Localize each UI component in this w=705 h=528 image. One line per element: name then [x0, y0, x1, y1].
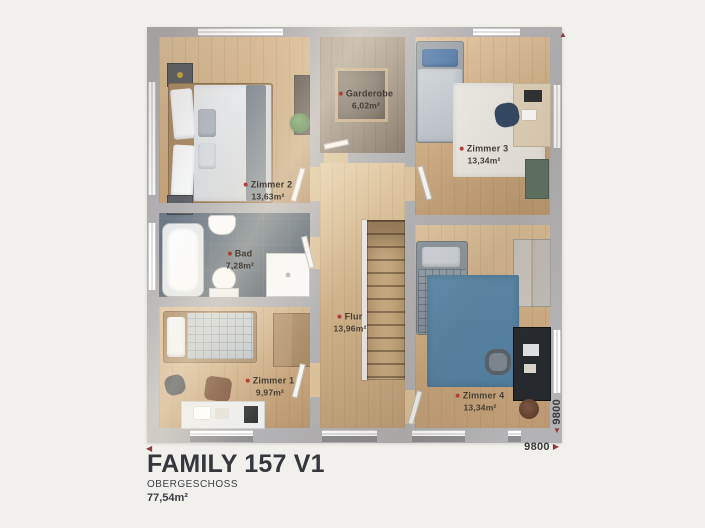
side-table [519, 399, 539, 419]
room-name-row: Flur [333, 312, 366, 324]
room-label-bad: Bad 7,28m² [226, 249, 254, 272]
wall-right-corridor [405, 37, 415, 428]
wall-zimmer3-zimmer4 [415, 215, 550, 225]
room-name-row: Zimmer 2 [244, 180, 293, 192]
wardrobe [273, 313, 311, 367]
papers [194, 407, 210, 419]
shower-drain [286, 273, 291, 278]
door-opening-zimmer1 [310, 363, 320, 397]
dim-bottom-width: 9800 ▶ [495, 441, 559, 453]
papers [216, 409, 228, 418]
room-marker-dot [456, 394, 460, 398]
window-top-zimmer3 [473, 28, 520, 36]
window-right-zimmer3 [553, 85, 561, 148]
desk-chair [203, 375, 232, 402]
lamp [177, 72, 183, 78]
room-name: Zimmer 4 [463, 391, 505, 401]
room-area: 13,34m² [456, 402, 505, 413]
room-name-row: Garderobe [339, 89, 393, 101]
stair-side-wall [362, 220, 367, 380]
accent-cushion [198, 109, 216, 137]
monitor [244, 406, 258, 423]
room-area: 13,96m² [333, 323, 366, 334]
pillow [171, 144, 196, 197]
room-name-row: Bad [226, 249, 254, 261]
room-name: Zimmer 3 [467, 144, 509, 154]
room-label-zimmer4: Zimmer 4 13,34m² [456, 391, 505, 414]
room-label-flur: Flur 13,96m² [333, 312, 366, 335]
room-label-garderobe: Garderobe 6,02m² [339, 89, 393, 112]
room-marker-dot [460, 147, 464, 151]
pillow [167, 317, 185, 357]
door-opening-zimmer2 [310, 167, 320, 201]
room-marker-dot [228, 252, 232, 256]
papers [522, 110, 536, 120]
room-name-row: Zimmer 1 [246, 376, 295, 388]
staircase [367, 220, 405, 380]
sink [208, 215, 236, 235]
desk [513, 327, 551, 401]
dim-arrow-left-icon: ◀ [146, 445, 152, 453]
room-area: 9,97m² [246, 387, 295, 398]
room-name: Bad [235, 249, 253, 259]
room-name-row: Zimmer 4 [456, 391, 505, 403]
pillow [422, 247, 460, 267]
room-marker-dot [338, 315, 342, 319]
pillow [170, 88, 196, 140]
floor-plan: Zimmer 2 13,63m² Garderobe 6,02m² Zimmer… [147, 27, 562, 443]
room-marker-dot [246, 379, 250, 383]
desk-chair [485, 349, 511, 375]
plan-total-area: 77,54m² [147, 492, 325, 504]
room-marker-dot [244, 183, 248, 187]
room-name-row: Zimmer 3 [460, 144, 509, 156]
bathtub [162, 223, 204, 297]
door-opening-zimmer3 [405, 167, 415, 201]
accent-cushion [198, 143, 216, 169]
room-name: Garderobe [346, 89, 393, 99]
window-right-zimmer4 [553, 330, 561, 393]
title-block: FAMILY 157 V1 OBERGESCHOSS 77,54m² [147, 451, 325, 504]
room-label-zimmer2: Zimmer 2 13,63m² [244, 180, 293, 203]
room-name: Zimmer 2 [251, 180, 293, 190]
laptop [524, 90, 542, 102]
room-name: Zimmer 1 [253, 376, 295, 386]
window-left-zimmer2 [148, 82, 156, 195]
shower [266, 253, 310, 297]
dim-right-height: 9800 ▼ [551, 399, 563, 435]
dim-arrow-up-icon: ▲ [559, 31, 567, 39]
room-area: 7,28m² [226, 260, 254, 271]
room-label-zimmer1: Zimmer 1 9,97m² [246, 376, 295, 399]
dim-arrow-down-icon: ▼ [553, 427, 561, 435]
plan-title: FAMILY 157 V1 [147, 451, 325, 477]
window-left-bad [148, 223, 156, 290]
desk [181, 401, 265, 429]
dim-arrow-right-icon: ▶ [553, 443, 559, 451]
room-area: 13,34m² [460, 155, 509, 166]
plant [290, 113, 310, 133]
bathtub-basin [167, 228, 199, 292]
laptop [523, 344, 539, 356]
wall-bad-zimmer1 [159, 297, 310, 307]
page: { "title_block": { "title": "FAMILY 157 … [0, 0, 705, 528]
room-label-zimmer3: Zimmer 3 13,34m² [460, 144, 509, 167]
room-name: Flur [345, 312, 363, 322]
window-sill [412, 436, 465, 442]
room-marker-dot [339, 92, 343, 96]
window-top-zimmer2 [198, 28, 283, 36]
papers [524, 364, 536, 373]
door-opening-garderobe [324, 153, 348, 163]
dresser [525, 159, 549, 199]
plan-subtitle: OBERGESCHOSS [147, 479, 325, 490]
pillow [422, 49, 458, 67]
window-sill [190, 436, 253, 442]
dim-height-value: 9800 [551, 399, 563, 425]
window-sill [322, 436, 377, 442]
duvet [187, 313, 253, 359]
dim-width-value: 9800 [524, 441, 550, 453]
wall-zimmer2-bad [159, 203, 310, 213]
room-area: 6,02m² [339, 100, 393, 111]
single-bed [163, 311, 257, 363]
room-area: 13,63m² [244, 191, 293, 202]
